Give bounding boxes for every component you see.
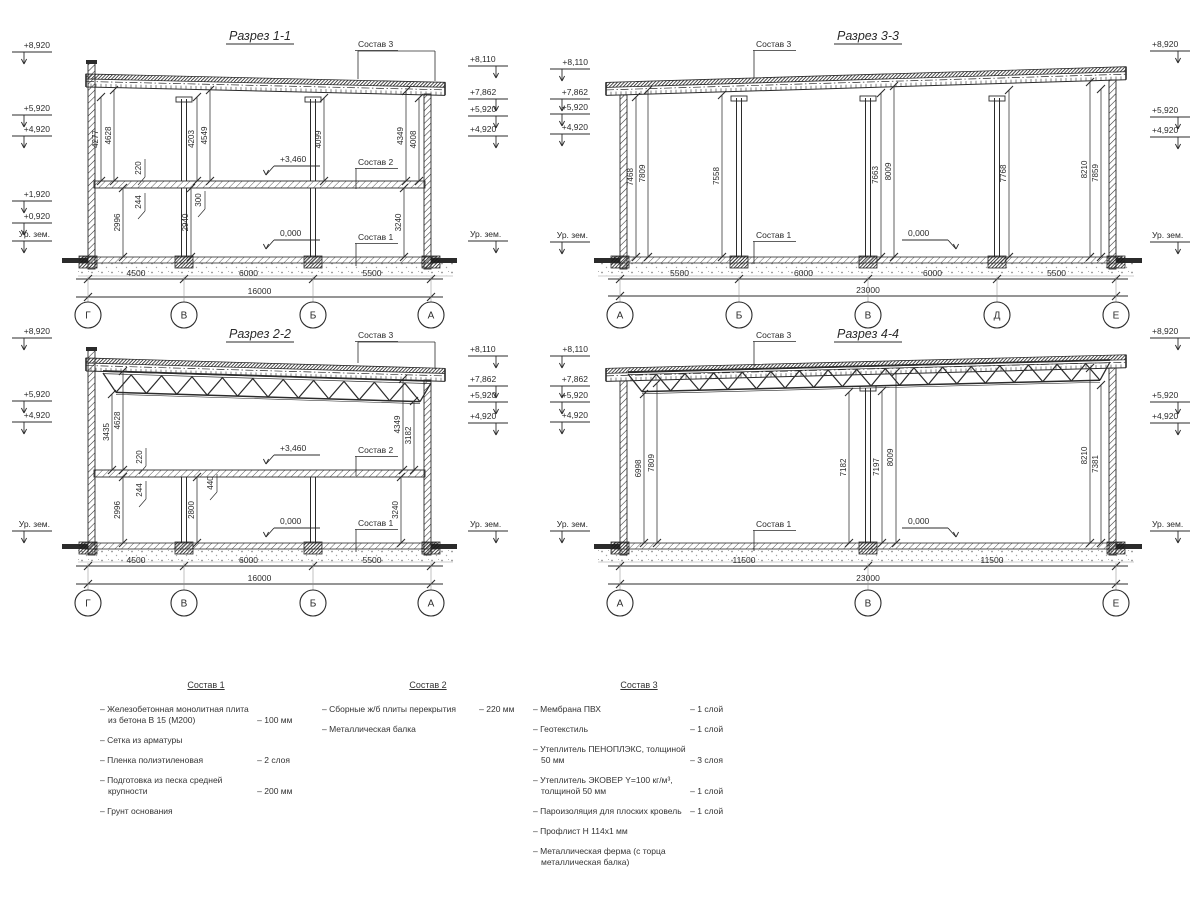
level-label: 0,000 [908,516,930,526]
legend-items: – Сборные ж/б плиты перекрытия– 220 мм– … [322,704,540,735]
elevation-label: +4,920 [24,124,51,134]
elevation-label: +8,110 [470,344,496,354]
elevation-label: +5,920 [1152,105,1179,115]
dimension-label: 7809 [638,164,647,182]
dimension-label: 4008 [409,130,418,148]
legend-item-value: – 1 слой [690,724,751,735]
elevation-label: Ур. зем. [470,519,501,529]
dimension-label: 2800 [187,501,196,519]
dimension-label: 3182 [404,426,413,444]
dimension-label: 6000 [239,268,258,278]
legend-item-label: – Пароизоляция для плоских кровель [533,806,688,817]
dimension-label: 7768 [999,164,1008,182]
dimension-label: 5500 [670,268,689,278]
legend-item-value: – 3 слоя [690,755,751,766]
legend-items: – Железобетонная монолитная плита из бет… [100,704,318,817]
elevation-label: +4,920 [562,410,589,420]
legend-item-label: – Сборные ж/б плиты перекрытия [322,704,477,715]
dimension-label: 3240 [394,213,403,231]
dimension-label: 7859 [1091,164,1100,182]
sections-drawing: +8,920+5,920+4,920+1,920+0,920Ур. зем.+8… [0,0,1200,660]
level-label: +3,460 [280,443,307,453]
elevation-label: +8,920 [1152,326,1179,336]
elevation-label: Ур. зем. [1152,519,1183,529]
elevation-label: +8,920 [24,326,51,336]
legend-item: – Утеплитель ПЕНОПЛЭКС, толщиной 50 мм– … [533,744,751,766]
axis-label: В [865,599,872,610]
legend-item: – Железобетонная монолитная плита из бет… [100,704,318,726]
material-callout: Состав 1 [756,230,792,240]
elevation-label: +7,862 [562,87,589,97]
dimension-label: 7381 [1091,455,1100,473]
elevation-label: Ур. зем. [1152,230,1183,240]
axis-label: В [181,599,188,610]
elevation-label: Ур. зем. [19,229,50,239]
legend-title: Состав 2 [322,680,534,691]
legend-item-value: – 1 слой [690,704,751,715]
elevation-label: +4,920 [24,410,51,420]
legend-item: – Пленка полиэтиленовая– 2 слоя [100,755,318,766]
dimension-label: 8009 [884,162,893,180]
legend-sostav-2: Состав 2 – Сборные ж/б плиты перекрытия–… [322,680,540,744]
dimension-label: 2996 [113,213,122,231]
elevation-label: +8,110 [562,57,588,67]
elevation-label: +1,920 [24,189,51,199]
dimension-label: 2996 [113,501,122,519]
dimension-label: 11500 [732,555,755,565]
dimension-label: 7663 [871,166,880,184]
thickness-label: 220 [135,450,144,464]
elevation-label: +5,920 [24,389,51,399]
material-callout: Состав 3 [358,39,394,49]
axis-label: Д [994,311,1001,322]
axis-label: А [428,599,435,610]
dimension-label: 6000 [923,268,942,278]
elevation-label: +8,920 [1152,39,1179,49]
legend-item-value: – 100 мм [257,715,318,726]
legend-item: – Утеплитель ЭКОВЕР Y=100 кг/м³, толщино… [533,775,751,797]
elevation-label: +5,920 [562,390,589,400]
elevation-label: +4,920 [1152,411,1179,421]
material-callout: Состав 2 [358,445,394,455]
dimension-label: 5500 [1047,268,1066,278]
elevation-label: +8,920 [24,40,51,50]
legend-item-label: – Геотекстиль [533,724,688,735]
material-callout: Состав 2 [358,157,394,167]
blueprint-sheet: +8,920+5,920+4,920+1,920+0,920Ур. зем.+8… [0,0,1200,900]
dimension-label: 4500 [127,268,146,278]
elevation-label: +5,920 [562,102,589,112]
legend-item-label: – Грунт основания [100,806,255,817]
material-callout: Состав 3 [756,39,792,49]
elevation-label: +7,862 [470,87,497,97]
legend-item: – Подготовка из песка средней крупности–… [100,775,318,797]
elevation-label: +7,862 [562,374,589,384]
legend-item-value: – 2 слоя [257,755,318,766]
legend-item: – Грунт основания [100,806,318,817]
axis-label: А [617,311,624,322]
legend-item-value: – 220 мм [479,704,540,715]
legend-item: – Геотекстиль– 1 слой [533,724,751,735]
legend-item-label: – Утеплитель ЭКОВЕР Y=100 кг/м³, толщино… [533,775,688,797]
dimension-label: 4549 [200,126,209,144]
section-title: Разрез 3-3 [837,29,899,43]
legend-sostav-1: Состав 1 – Железобетонная монолитная пли… [100,680,318,826]
axis-label: Г [85,599,91,610]
elevation-label: +8,110 [562,344,588,354]
elevation-label: +5,920 [1152,390,1179,400]
dimension-label: 4203 [187,130,196,148]
legend-item-label: – Подготовка из песка средней крупности [100,775,255,797]
legend-item: – Металлическая балка [322,724,540,735]
legend-item-label: – Железобетонная монолитная плита из бет… [100,704,255,726]
dimension-label: 5500 [363,268,382,278]
elevation-label: +7,862 [470,374,497,384]
legend-item-value: – 1 слой [690,786,751,797]
legend-title: Состав 3 [533,680,745,691]
thickness-label: 300 [194,193,203,207]
legend-item-label: – Металлическая ферма (с торца металличе… [533,846,688,868]
dimension-label: 3240 [391,501,400,519]
elevation-label: +4,920 [1152,125,1179,135]
legend-item-label: – Сетка из арматуры [100,735,255,746]
section-title: Разрез 2-2 [229,327,291,341]
legend-items: – Мембрана ПВХ– 1 слой– Геотекстиль– 1 с… [533,704,751,868]
legend-item: – Сетка из арматуры [100,735,318,746]
legend-sostav-3: Состав 3 – Мембрана ПВХ– 1 слой– Геотекс… [533,680,751,877]
elevation-label: +4,920 [470,411,497,421]
elevation-label: +8,110 [470,54,496,64]
material-callout: Состав 1 [358,232,394,242]
section-title: Разрез 1-1 [229,29,291,43]
material-callout: Состав 3 [358,330,394,340]
dimension-label: 7182 [839,458,848,476]
dimension-label: 4628 [104,126,113,144]
legend-item: – Сборные ж/б плиты перекрытия– 220 мм [322,704,540,715]
elevation-label: +5,920 [24,103,51,113]
elevation-label: Ур. зем. [557,519,588,529]
dimension-label: 4349 [396,127,405,145]
legend-title: Состав 1 [100,680,312,691]
dimension-label: 8009 [886,448,895,466]
axis-label: В [181,311,188,322]
dimension-label: 4628 [113,411,122,429]
legend-item-value: – 1 слой [690,806,751,817]
legend-item-value: – 200 мм [257,786,318,797]
dimension-label: 6000 [239,555,258,565]
dimension-label: 16000 [248,573,272,583]
thickness-label: 440 [206,476,215,490]
level-label: 0,000 [280,228,302,238]
axis-label: А [617,599,624,610]
legend-item-label: – Утеплитель ПЕНОПЛЭКС, толщиной 50 мм [533,744,688,766]
axis-label: А [428,311,435,322]
dimension-label: 5500 [363,555,382,565]
dimension-label: 4099 [314,130,323,148]
axis-label: Б [736,311,743,322]
legend-item: – Профлист Н 114х1 мм [533,826,751,837]
section-title: Разрез 4-4 [837,327,899,341]
dimension-label: 6000 [794,268,813,278]
legend-item-label: – Пленка полиэтиленовая [100,755,255,766]
axis-label: Е [1113,311,1120,322]
axis-label: Г [85,311,91,322]
dimension-label: 4349 [393,415,402,433]
axis-label: Б [310,311,317,322]
dimension-label: 7197 [872,458,881,476]
dimension-label: 8210 [1080,446,1089,464]
material-callout: Состав 1 [756,519,792,529]
dimension-label: 3435 [102,423,111,441]
dimension-label: 4277 [91,130,100,148]
dimension-label: 2940 [181,213,190,231]
legend-item-label: – Мембрана ПВХ [533,704,688,715]
legend-item: – Металлическая ферма (с торца металличе… [533,846,751,868]
legend-item: – Пароизоляция для плоских кровель– 1 сл… [533,806,751,817]
elevation-label: Ур. зем. [19,519,50,529]
elevation-label: +5,920 [470,104,497,114]
dimension-label: 8210 [1080,160,1089,178]
elevation-label: +4,920 [562,122,589,132]
thickness-label: 220 [134,161,143,175]
legend-item-label: – Металлическая балка [322,724,477,735]
thickness-label: 244 [135,483,144,497]
axis-label: В [865,311,872,322]
dimension-label: 7809 [647,454,656,472]
level-label: +3,460 [280,154,307,164]
dimension-label: 4500 [127,555,146,565]
level-label: 0,000 [908,228,930,238]
dimension-label: 6998 [634,459,643,477]
elevation-label: +0,920 [24,211,51,221]
level-label: 0,000 [280,516,302,526]
legend-item: – Мембрана ПВХ– 1 слой [533,704,751,715]
axis-label: Е [1113,599,1120,610]
axis-label: Б [310,599,317,610]
material-callout: Состав 1 [358,518,394,528]
thickness-label: 244 [134,195,143,209]
dimension-label: 7468 [626,168,635,186]
elevation-label: Ур. зем. [470,229,501,239]
dimension-label: 11500 [980,555,1003,565]
elevation-label: +4,920 [470,124,497,134]
elevation-label: Ур. зем. [557,230,588,240]
elevation-label: +5,920 [470,390,497,400]
dimension-label: 16000 [248,286,272,296]
dimension-label: 7558 [712,167,721,185]
material-callout: Состав 3 [756,330,792,340]
legend-item-label: – Профлист Н 114х1 мм [533,826,688,837]
